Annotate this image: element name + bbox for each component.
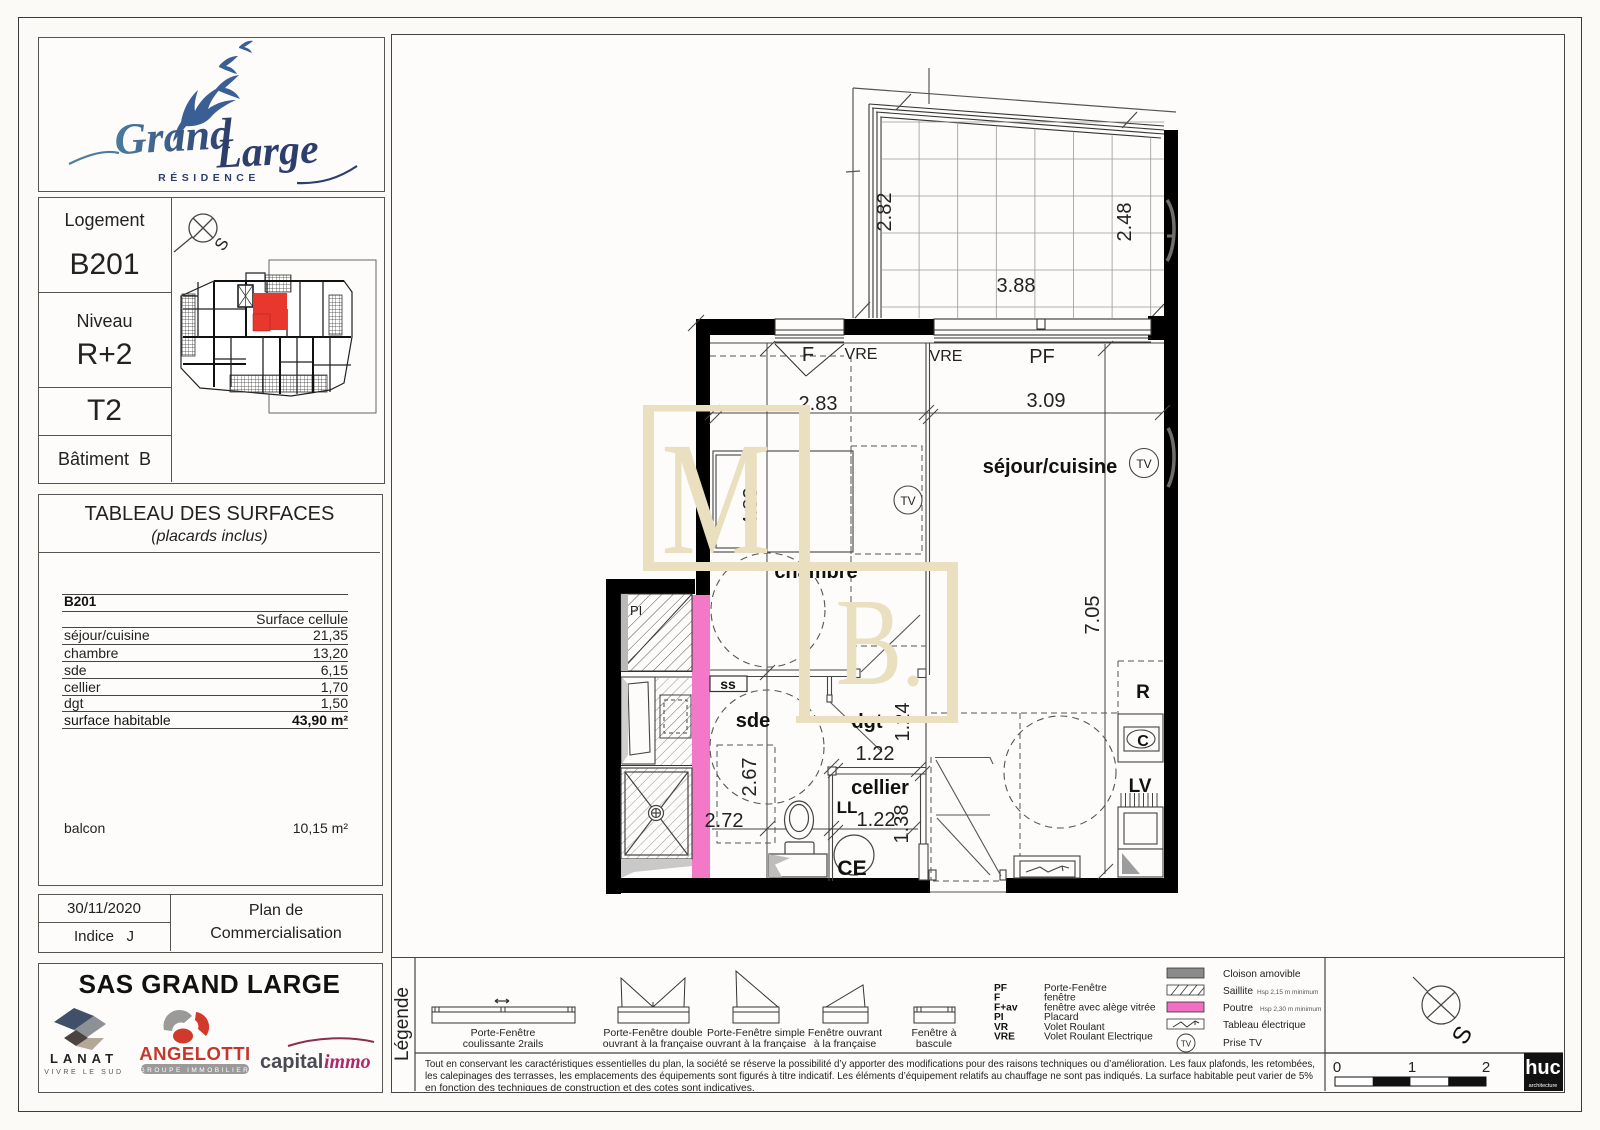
svg-text:1.22: 1.22 [856, 743, 895, 765]
svg-text:huc: huc [1525, 1057, 1561, 1079]
svg-text:séjour/cuisine: séjour/cuisine [983, 456, 1118, 478]
svg-text:1.38: 1.38 [891, 805, 913, 844]
svg-text:S: S [1447, 1022, 1478, 1049]
svg-text:7.05: 7.05 [1082, 596, 1104, 635]
svg-text:coulissante 2rails: coulissante 2rails [463, 1038, 544, 1050]
svg-text:architecture: architecture [1529, 1083, 1558, 1089]
svg-text:1.22: 1.22 [857, 809, 896, 831]
svg-text:C: C [1137, 733, 1149, 750]
svg-text:ss: ss [720, 676, 736, 692]
svg-text:TV: TV [1181, 1040, 1192, 1049]
svg-text:ouvrant à la française: ouvrant à la française [706, 1038, 807, 1050]
svg-text:en fonction des techniques de: en fonction des techniques de constructi… [425, 1083, 755, 1091]
svg-text:Hsp 2,15 m minimum: Hsp 2,15 m minimum [1257, 989, 1318, 996]
svg-text:1: 1 [1408, 1059, 1416, 1076]
svg-text:2: 2 [1482, 1059, 1490, 1076]
svg-text:2.72: 2.72 [705, 810, 744, 832]
svg-text:PI: PI [630, 603, 642, 618]
svg-text:VRE: VRE [994, 1032, 1015, 1043]
svg-text:Hsp 2,30 m minimum: Hsp 2,30 m minimum [1260, 1006, 1321, 1013]
svg-text:M: M [661, 410, 770, 589]
svg-text:LL: LL [837, 798, 858, 817]
svg-text:TV: TV [1136, 457, 1151, 471]
svg-text:PF: PF [1029, 346, 1055, 368]
svg-text:Saillite: Saillite [1223, 986, 1253, 997]
svg-text:0: 0 [1333, 1059, 1341, 1076]
svg-text:Légende: Légende [392, 987, 413, 1061]
svg-text:VRE: VRE [845, 346, 878, 363]
svg-text:les calepinages des terrasses,: les calepinages des terrasses, les empla… [425, 1071, 1313, 1082]
svg-text:Prise TV: Prise TV [1223, 1038, 1262, 1049]
svg-text:sde: sde [736, 710, 770, 732]
svg-text:VRE: VRE [930, 348, 963, 365]
svg-text:Tout en conservant les caracté: Tout en conservant les caractéristiques … [425, 1059, 1315, 1070]
svg-text:cellier: cellier [851, 777, 909, 799]
svg-text:B: B [836, 574, 903, 712]
svg-text:R: R [1136, 682, 1150, 703]
svg-text:F: F [802, 344, 814, 366]
svg-text:Cloison amovible: Cloison amovible [1223, 969, 1301, 980]
svg-text:CE: CE [837, 857, 866, 880]
svg-text:3.09: 3.09 [1027, 390, 1066, 412]
svg-text:à la française: à la française [814, 1038, 877, 1050]
svg-text:Tableau électrique: Tableau électrique [1223, 1020, 1306, 1031]
svg-text:ouvrant à la française: ouvrant à la française [603, 1038, 704, 1050]
svg-text:2.82: 2.82 [874, 193, 896, 232]
svg-text:2.67: 2.67 [739, 758, 761, 797]
svg-text:2.48: 2.48 [1114, 203, 1136, 242]
svg-text:Poutre: Poutre [1223, 1003, 1253, 1014]
svg-text:Volet Roulant Electrique: Volet Roulant Electrique [1044, 1032, 1153, 1043]
svg-text:3.88: 3.88 [997, 275, 1036, 297]
svg-text:bascule: bascule [916, 1038, 952, 1050]
svg-text:TV: TV [900, 494, 915, 508]
